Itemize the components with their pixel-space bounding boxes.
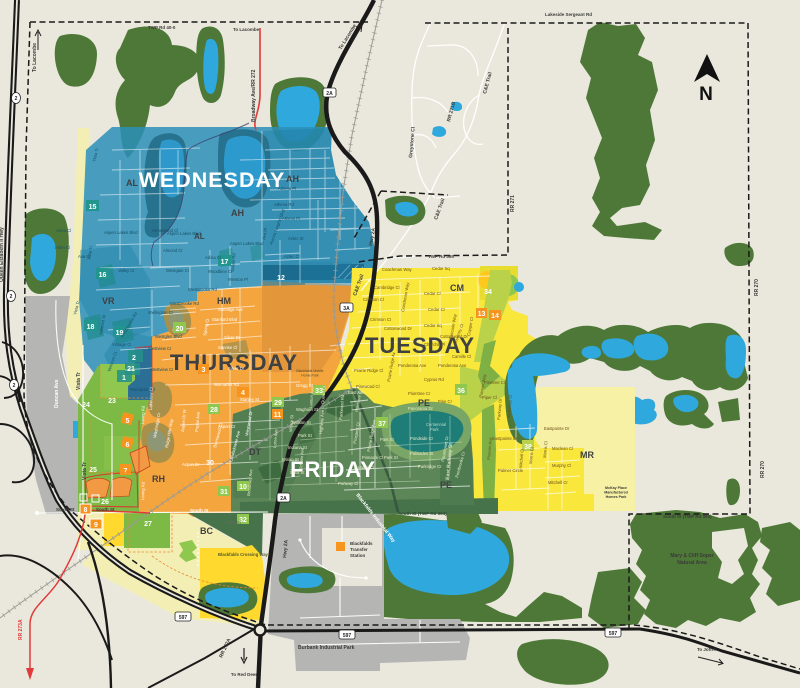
svg-text:DT: DT — [249, 447, 261, 457]
svg-text:Crimson Cl: Crimson Cl — [363, 297, 384, 302]
svg-text:Ponderosa Ave: Ponderosa Ave — [438, 363, 467, 368]
svg-text:Cedar Sq: Cedar Sq — [424, 323, 442, 328]
svg-text:Shull St: Shull St — [290, 470, 305, 475]
svg-text:30: 30 — [206, 460, 214, 467]
svg-text:34: 34 — [484, 289, 492, 296]
svg-text:17: 17 — [221, 259, 229, 266]
svg-text:Aztec Cr: Aztec Cr — [284, 254, 301, 259]
svg-text:HM: HM — [217, 296, 231, 306]
svg-text:Homes Park: Homes Park — [606, 495, 627, 499]
svg-text:Arrowwood Cl: Arrowwood Cl — [152, 228, 178, 233]
svg-text:TWP Rd 40-0: TWP Rd 40-0 — [148, 25, 176, 30]
svg-text:Westglen Blvd: Westglen Blvd — [155, 334, 182, 339]
svg-text:Broadway Ave/RR 272: Broadway Ave/RR 272 — [251, 69, 257, 122]
svg-text:AH: AH — [286, 174, 299, 184]
svg-text:Churchill Pl: Churchill Pl — [424, 342, 445, 347]
svg-text:South St: South St — [56, 507, 75, 512]
svg-text:Aspen Cr: Aspen Cr — [218, 424, 236, 429]
svg-text:Valley Cr: Valley Cr — [118, 268, 135, 273]
svg-text:Ponderosa Ave: Ponderosa Ave — [398, 363, 427, 368]
svg-text:Eastpointe Dr: Eastpointe Dr — [544, 426, 570, 431]
svg-text:Blackfalds Crossing Way: Blackfalds Crossing Way — [218, 552, 269, 557]
svg-text:Athens Pl: Athens Pl — [282, 216, 300, 221]
svg-text:23: 23 — [108, 398, 116, 405]
svg-text:RR 273A: RR 273A — [18, 619, 24, 640]
svg-text:Panorama Dr: Panorama Dr — [408, 406, 434, 411]
svg-text:McKay Place: McKay Place — [605, 486, 627, 490]
svg-text:2: 2 — [10, 294, 13, 300]
svg-text:2A: 2A — [326, 91, 333, 97]
svg-text:18: 18 — [87, 324, 95, 331]
svg-text:To Joffre: To Joffre — [697, 647, 716, 652]
svg-text:Home Park: Home Park — [301, 374, 319, 378]
svg-text:Westbrooke Rd: Westbrooke Rd — [188, 287, 217, 292]
svg-text:Leung Rd: Leung Rd — [140, 481, 146, 500]
svg-text:N: N — [699, 84, 713, 105]
svg-text:Vista Tr: Vista Tr — [76, 372, 82, 390]
svg-text:Natural Area: Natural Area — [677, 560, 707, 566]
svg-text:Piper Cl: Piper Cl — [482, 395, 497, 400]
svg-text:16: 16 — [99, 272, 107, 279]
svg-text:Aspen Lakes Blvd: Aspen Lakes Blvd — [104, 230, 138, 235]
svg-text:PE: PE — [440, 480, 452, 490]
svg-text:Mitchell Cr: Mitchell Cr — [548, 480, 568, 485]
svg-text:31: 31 — [220, 489, 228, 496]
svg-text:13: 13 — [478, 311, 486, 318]
svg-text:8: 8 — [84, 507, 88, 514]
svg-text:Duncan Ave: Duncan Ave — [54, 379, 60, 408]
svg-text:Aztec St: Aztec St — [288, 236, 304, 241]
svg-text:Queen Elizabeth II Hwy: Queen Elizabeth II Hwy — [0, 227, 5, 282]
svg-text:RR 271: RR 271 — [510, 195, 516, 212]
svg-text:28: 28 — [210, 407, 218, 414]
svg-text:15: 15 — [89, 204, 97, 211]
svg-text:Leung Rd: Leung Rd — [140, 405, 146, 424]
svg-text:1: 1 — [122, 375, 126, 382]
svg-text:Silver Dr: Silver Dr — [224, 335, 241, 340]
svg-text:2: 2 — [15, 96, 18, 102]
svg-text:Stanford Blvd: Stanford Blvd — [212, 317, 238, 322]
svg-text:To Red Deer: To Red Deer — [231, 672, 257, 677]
svg-text:Camille Cl: Camille Cl — [452, 354, 471, 359]
svg-text:2A: 2A — [280, 496, 287, 502]
svg-text:Park St: Park St — [380, 437, 395, 442]
svg-text:To Lacombe: To Lacombe — [233, 27, 260, 32]
svg-text:2: 2 — [13, 383, 16, 389]
svg-text:Eastpointe Dr: Eastpointe Dr — [492, 436, 518, 441]
svg-text:THURSDAY: THURSDAY — [170, 350, 298, 375]
svg-text:Parkridge Cr: Parkridge Cr — [418, 464, 442, 469]
svg-text:RH: RH — [152, 474, 165, 484]
svg-text:Portway Cl: Portway Cl — [338, 481, 358, 486]
svg-text:Crimson Ct: Crimson Ct — [370, 317, 392, 322]
svg-text:Cedar Sq: Cedar Sq — [432, 266, 450, 271]
svg-text:Palisades St: Palisades St — [410, 451, 434, 456]
svg-text:Park St: Park St — [384, 455, 399, 460]
svg-text:Pine Cr: Pine Cr — [438, 399, 453, 404]
svg-text:37: 37 — [378, 421, 386, 428]
svg-text:3A: 3A — [343, 306, 350, 312]
svg-text:Prairie Ridge Cl: Prairie Ridge Cl — [354, 368, 383, 373]
svg-text:Womacks Rd: Womacks Rd — [214, 382, 239, 387]
svg-text:Wellington Cl: Wellington Cl — [148, 310, 173, 315]
svg-text:Westbrooke Rd: Westbrooke Rd — [170, 301, 199, 306]
svg-text:597: 597 — [179, 615, 188, 621]
svg-text:Westview Cr: Westview Cr — [150, 367, 174, 372]
svg-text:Murphy Cl: Murphy Cl — [552, 463, 571, 468]
svg-text:Westview Cr: Westview Cr — [148, 346, 172, 351]
svg-text:Portway Cl: Portway Cl — [354, 465, 374, 470]
svg-text:Winston Pl: Winston Pl — [228, 277, 248, 282]
svg-text:Cedar Cr: Cedar Cr — [428, 307, 446, 312]
svg-text:Vintage Cl: Vintage Cl — [112, 342, 131, 347]
svg-text:Almond Cr: Almond Cr — [163, 248, 183, 253]
svg-text:597: 597 — [343, 633, 352, 639]
svg-text:11: 11 — [274, 412, 282, 419]
svg-text:36: 36 — [457, 388, 465, 395]
svg-text:Aspen Lakes Blvd: Aspen Lakes Blvd — [230, 241, 264, 246]
svg-text:4: 4 — [241, 390, 245, 397]
svg-text:6: 6 — [126, 442, 130, 449]
svg-text:Manufactured: Manufactured — [604, 491, 628, 495]
svg-text:12: 12 — [277, 275, 285, 282]
svg-text:3: 3 — [202, 367, 206, 374]
svg-text:Trout St: Trout St — [226, 520, 242, 525]
svg-text:CM: CM — [450, 283, 464, 293]
svg-text:Sunridge Ave: Sunridge Ave — [218, 307, 244, 312]
svg-text:Anna Cl: Anna Cl — [56, 228, 71, 233]
svg-text:14: 14 — [491, 313, 499, 320]
svg-text:Lakeside Sergeant Rd: Lakeside Sergeant Rd — [545, 12, 592, 17]
svg-text:Westgate Cr: Westgate Cr — [166, 268, 190, 273]
svg-text:Maclean Cl: Maclean Cl — [552, 446, 573, 451]
svg-text:Cyprus Rd: Cyprus Rd — [424, 377, 444, 382]
svg-text:Blackfalds: Blackfalds — [350, 541, 373, 546]
svg-text:21: 21 — [127, 366, 135, 373]
svg-text:Athena Rd: Athena Rd — [274, 202, 294, 207]
svg-text:Burbank Industrial Park: Burbank Industrial Park — [298, 645, 355, 651]
svg-text:Coachman Way: Coachman Way — [382, 267, 413, 272]
svg-text:26: 26 — [101, 499, 109, 506]
svg-text:Mary & Cliff Soper: Mary & Cliff Soper — [670, 553, 713, 559]
svg-text:Athena Pl: Athena Pl — [278, 186, 296, 191]
svg-text:WEDNESDAY: WEDNESDAY — [139, 168, 286, 192]
svg-text:South St: South St — [96, 507, 115, 512]
svg-text:BC: BC — [200, 526, 213, 536]
svg-text:Pinewood Cl: Pinewood Cl — [356, 384, 380, 389]
svg-text:Willson St: Willson St — [292, 420, 311, 425]
svg-text:Transfer: Transfer — [350, 547, 368, 552]
svg-text:Stanley St: Stanley St — [240, 397, 260, 402]
svg-text:27: 27 — [144, 521, 152, 528]
svg-text:Blackfalds Mobile: Blackfalds Mobile — [296, 369, 323, 373]
svg-text:South St: South St — [190, 508, 209, 513]
svg-text:Winko St: Winko St — [282, 457, 300, 462]
svg-text:Pinnacle Cl: Pinnacle Cl — [362, 455, 383, 460]
svg-text:RR 270: RR 270 — [754, 279, 760, 296]
svg-text:Plumtree Cr: Plumtree Cr — [408, 391, 431, 396]
svg-text:Pondside Cr: Pondside Cr — [410, 436, 434, 441]
svg-text:Lakeview Cl: Lakeview Cl — [148, 387, 154, 410]
svg-text:Cottonwood Dr: Cottonwood Dr — [384, 326, 413, 331]
svg-text:VR: VR — [102, 296, 115, 306]
svg-text:South St (TWP Rd 394): South St (TWP Rd 394) — [663, 514, 712, 519]
svg-text:AL: AL — [126, 178, 138, 188]
svg-text:597: 597 — [609, 631, 618, 637]
svg-text:Vista Tr: Vista Tr — [82, 462, 88, 480]
svg-text:Cambridge Cl: Cambridge Cl — [374, 285, 400, 290]
svg-text:Station: Station — [350, 553, 366, 558]
svg-text:TWP Rd 395: TWP Rd 395 — [428, 254, 454, 259]
svg-text:Woodbine Cl: Woodbine Cl — [208, 269, 232, 274]
svg-text:South St (TWP Rd 394): South St (TWP Rd 394) — [398, 511, 447, 516]
svg-text:9: 9 — [94, 522, 98, 529]
svg-text:RR 270: RR 270 — [760, 461, 766, 478]
svg-text:Park: Park — [430, 427, 440, 432]
svg-text:Silver Dr: Silver Dr — [228, 366, 245, 371]
svg-text:Park St: Park St — [298, 433, 313, 438]
svg-text:Adina Cl: Adina Cl — [205, 255, 221, 260]
svg-text:2: 2 — [132, 355, 136, 362]
svg-text:Pinetree Cl: Pinetree Cl — [484, 380, 505, 385]
svg-text:29: 29 — [274, 400, 282, 407]
svg-text:7: 7 — [124, 468, 128, 475]
svg-text:AH: AH — [231, 208, 244, 218]
svg-text:Aspen Dr: Aspen Dr — [182, 462, 200, 467]
svg-text:24: 24 — [82, 402, 90, 409]
svg-text:To Lacombe: To Lacombe — [32, 43, 38, 72]
svg-text:5: 5 — [126, 418, 130, 425]
svg-text:Sunrise Cl: Sunrise Cl — [218, 345, 237, 350]
svg-text:Palmer Circle: Palmer Circle — [498, 468, 524, 473]
svg-text:MR: MR — [580, 450, 594, 460]
svg-text:20: 20 — [176, 326, 184, 333]
svg-text:Arlen Cl: Arlen Cl — [55, 245, 70, 250]
svg-text:Cedar Cl: Cedar Cl — [424, 291, 441, 296]
